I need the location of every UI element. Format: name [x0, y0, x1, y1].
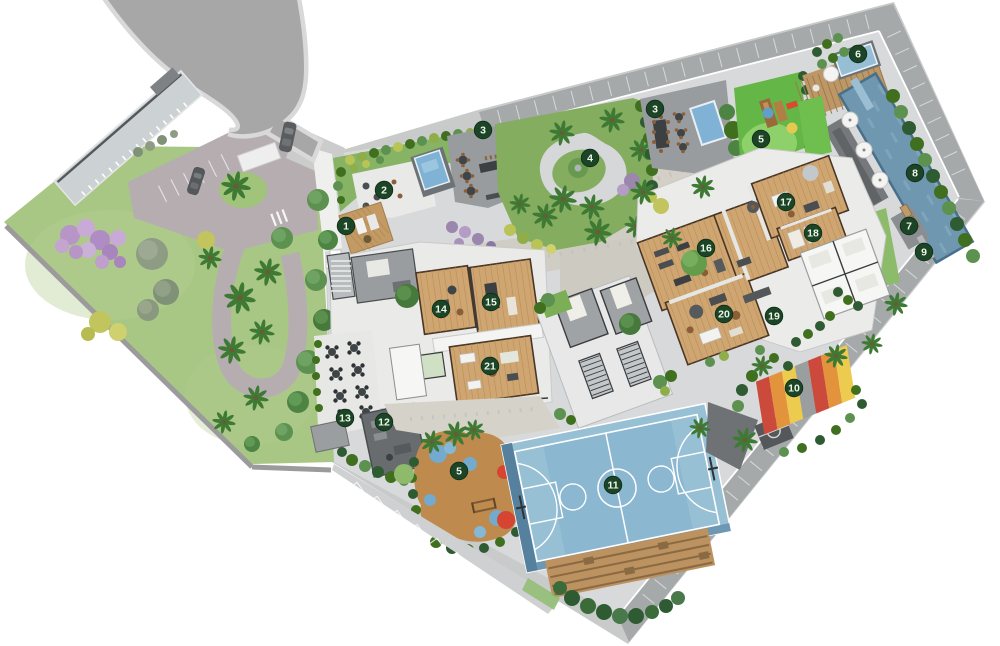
svg-text:12: 12: [378, 417, 390, 429]
svg-text:16: 16: [700, 243, 712, 255]
svg-text:18: 18: [807, 228, 819, 240]
svg-text:13: 13: [339, 413, 351, 425]
svg-text:5: 5: [456, 466, 462, 478]
svg-text:5: 5: [758, 134, 764, 146]
svg-text:1: 1: [343, 221, 349, 233]
svg-text:9: 9: [921, 247, 927, 259]
svg-text:8: 8: [912, 168, 918, 180]
svg-text:14: 14: [435, 304, 447, 316]
svg-text:15: 15: [485, 297, 497, 309]
svg-text:20: 20: [718, 309, 730, 321]
svg-text:11: 11: [607, 480, 618, 492]
svg-text:21: 21: [484, 361, 496, 373]
svg-text:7: 7: [906, 221, 912, 233]
svg-text:4: 4: [587, 153, 593, 165]
svg-text:17: 17: [780, 197, 792, 209]
svg-text:10: 10: [788, 383, 800, 395]
svg-text:19: 19: [768, 311, 780, 323]
svg-text:6: 6: [855, 49, 861, 61]
svg-text:3: 3: [480, 125, 486, 137]
svg-text:3: 3: [652, 104, 658, 116]
svg-text:2: 2: [381, 185, 387, 197]
